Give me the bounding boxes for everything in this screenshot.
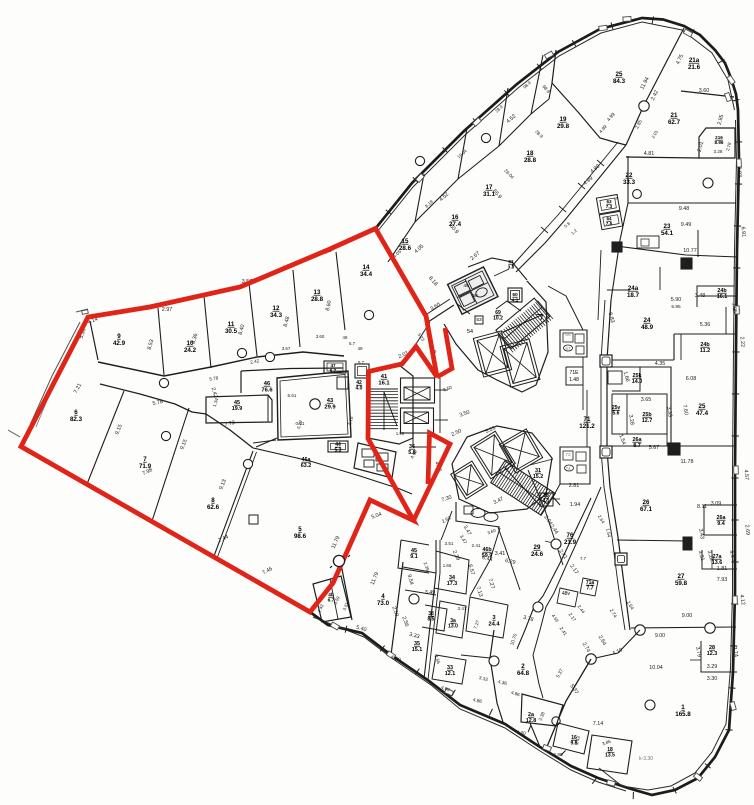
svg-text:1.98: 1.98 [396, 431, 405, 436]
svg-text:165.8: 165.8 [675, 711, 691, 718]
svg-text:7.5: 7.5 [606, 221, 613, 226]
svg-text:3.41: 3.41 [495, 551, 506, 557]
svg-text:4.1: 4.1 [512, 297, 519, 303]
svg-text:4.81: 4.81 [644, 151, 655, 157]
svg-text:12.7: 12.7 [642, 418, 653, 424]
svg-text:3.09: 3.09 [711, 501, 722, 507]
svg-text:3.49: 3.49 [425, 590, 436, 596]
svg-text:66: 66 [565, 332, 571, 338]
svg-text:28.8: 28.8 [311, 296, 324, 303]
svg-text:48v: 48v [562, 591, 571, 597]
svg-text:64.8: 64.8 [517, 670, 530, 677]
svg-text:3.8: 3.8 [508, 264, 515, 270]
svg-text:63.2: 63.2 [301, 463, 312, 469]
svg-text:1.48: 1.48 [569, 377, 579, 383]
svg-text:33.3: 33.3 [623, 179, 636, 186]
svg-text:12.1: 12.1 [445, 671, 456, 677]
svg-text:8.5: 8.5 [428, 617, 435, 623]
svg-text:5.3: 5.3 [335, 448, 342, 454]
svg-text:2.69: 2.69 [744, 524, 751, 535]
svg-text:59.8: 59.8 [675, 580, 688, 587]
svg-text:3.30: 3.30 [707, 676, 718, 682]
svg-text:84.3: 84.3 [613, 78, 626, 85]
svg-text:18.7: 18.7 [627, 292, 640, 299]
svg-text:5.7: 5.7 [330, 368, 337, 373]
svg-text:6.61: 6.61 [288, 393, 297, 398]
svg-text:29.8: 29.8 [557, 123, 570, 130]
svg-text:7.93: 7.93 [717, 577, 728, 583]
svg-text:10.04: 10.04 [649, 665, 663, 671]
svg-text:4.1: 4.1 [543, 499, 550, 505]
svg-text:121.2: 121.2 [579, 423, 595, 430]
svg-text:3.65: 3.65 [641, 397, 652, 403]
svg-text:30.5: 30.5 [225, 328, 238, 335]
svg-text:98.6: 98.6 [294, 533, 307, 540]
svg-text:13.0: 13.0 [448, 624, 458, 630]
svg-text:73.0: 73.0 [377, 600, 390, 607]
svg-text:4.0: 4.0 [356, 386, 363, 392]
svg-text:3.93: 3.93 [736, 166, 743, 177]
svg-text:8.7: 8.7 [633, 443, 641, 449]
svg-text:62.6: 62.6 [207, 504, 220, 511]
svg-text:2.85: 2.85 [553, 752, 563, 758]
svg-text:53: 53 [476, 317, 482, 323]
svg-text:48: 48 [343, 335, 348, 340]
svg-text:13.5: 13.5 [605, 753, 615, 759]
svg-text:9.4: 9.4 [717, 521, 725, 527]
svg-text:12.3: 12.3 [707, 651, 718, 657]
svg-text:9.00: 9.00 [682, 613, 693, 619]
svg-text:15.2: 15.2 [533, 474, 544, 480]
svg-text:14.0: 14.0 [632, 379, 643, 385]
svg-text:5.95: 5.95 [671, 304, 681, 310]
svg-text:2.41: 2.41 [472, 543, 481, 548]
svg-text:16.1: 16.1 [378, 380, 390, 386]
svg-text:3.48: 3.48 [695, 293, 706, 299]
svg-text:24.4: 24.4 [488, 621, 500, 627]
svg-text:28.8: 28.8 [524, 157, 537, 164]
svg-text:24.2: 24.2 [184, 347, 197, 354]
svg-text:47.4: 47.4 [696, 410, 709, 417]
svg-text:76.6: 76.6 [261, 387, 273, 393]
svg-text:3.28: 3.28 [714, 149, 723, 154]
svg-text:2.81: 2.81 [569, 483, 580, 489]
svg-text:72: 72 [565, 452, 571, 458]
svg-text:7.7: 7.7 [580, 556, 587, 561]
svg-text:5.7: 5.7 [349, 341, 356, 346]
svg-text:7.7: 7.7 [587, 586, 594, 592]
svg-text:1.66: 1.66 [443, 563, 452, 568]
svg-text:2.97: 2.97 [162, 307, 173, 313]
svg-text:71E: 71E [570, 370, 580, 376]
svg-text:5.7: 5.7 [358, 360, 365, 365]
svg-text:9.1: 9.1 [410, 554, 418, 560]
svg-text:5.67: 5.67 [649, 445, 660, 451]
svg-text:62.7: 62.7 [668, 119, 681, 126]
svg-text:34.3: 34.3 [270, 312, 283, 319]
svg-text:10.2: 10.2 [493, 316, 503, 322]
svg-text:4.57: 4.57 [743, 469, 750, 480]
svg-text:1.81: 1.81 [717, 566, 728, 572]
svg-text:12.8: 12.8 [526, 718, 537, 724]
svg-text:11.78: 11.78 [680, 459, 693, 465]
svg-text:82.3: 82.3 [70, 416, 83, 423]
svg-text:24.6: 24.6 [531, 551, 544, 558]
svg-text:17.3: 17.3 [447, 581, 458, 587]
svg-text:2.22: 2.22 [739, 336, 746, 347]
svg-text:5.6: 5.6 [613, 411, 620, 417]
svg-text:19.9: 19.9 [232, 406, 243, 412]
svg-text:34.4: 34.4 [360, 271, 373, 278]
svg-text:9.48: 9.48 [679, 206, 690, 212]
svg-text:3.60: 3.60 [316, 334, 325, 339]
svg-text:5.90: 5.90 [671, 297, 682, 303]
svg-text:54.1: 54.1 [661, 230, 674, 237]
svg-text:50: 50 [472, 293, 478, 299]
svg-text:28.6: 28.6 [399, 245, 412, 252]
svg-text:3.60: 3.60 [699, 88, 710, 94]
svg-text:29.9: 29.9 [324, 404, 336, 410]
svg-text:1.94: 1.94 [570, 502, 581, 508]
svg-text:4.35: 4.35 [655, 361, 666, 367]
svg-text:3.29: 3.29 [707, 664, 718, 670]
svg-text:1.95: 1.95 [731, 302, 738, 313]
svg-text:67: 67 [565, 346, 571, 352]
svg-text:7.14: 7.14 [593, 721, 604, 727]
svg-text:54: 54 [467, 329, 473, 335]
svg-text:11.2: 11.2 [700, 348, 710, 354]
svg-text:3.51: 3.51 [445, 541, 454, 546]
svg-text:9.00: 9.00 [655, 633, 665, 639]
svg-text:k-3.30: k-3.30 [639, 756, 653, 762]
svg-text:48.9: 48.9 [641, 324, 654, 331]
svg-text:74: 74 [565, 466, 571, 472]
svg-text:8.11: 8.11 [697, 504, 707, 510]
svg-text:3.57: 3.57 [282, 346, 291, 351]
svg-text:8.96: 8.96 [715, 140, 724, 145]
svg-text:16.1: 16.1 [717, 294, 728, 300]
svg-text:49: 49 [357, 346, 363, 351]
svg-text:7.3: 7.3 [606, 204, 613, 209]
svg-text:3.41: 3.41 [458, 606, 467, 611]
svg-text:10.77: 10.77 [683, 248, 697, 254]
svg-text:21.9: 21.9 [564, 539, 577, 546]
svg-text:5.36: 5.36 [700, 322, 711, 328]
svg-text:6.91: 6.91 [740, 226, 747, 237]
svg-text:49: 49 [463, 283, 469, 289]
svg-text:9.49: 9.49 [681, 222, 692, 228]
svg-text:21.6: 21.6 [688, 64, 701, 71]
svg-text:6.08: 6.08 [686, 376, 697, 382]
svg-text:15.1: 15.1 [412, 647, 423, 653]
svg-text:67.1: 67.1 [640, 506, 653, 513]
svg-text:42.9: 42.9 [113, 340, 126, 347]
